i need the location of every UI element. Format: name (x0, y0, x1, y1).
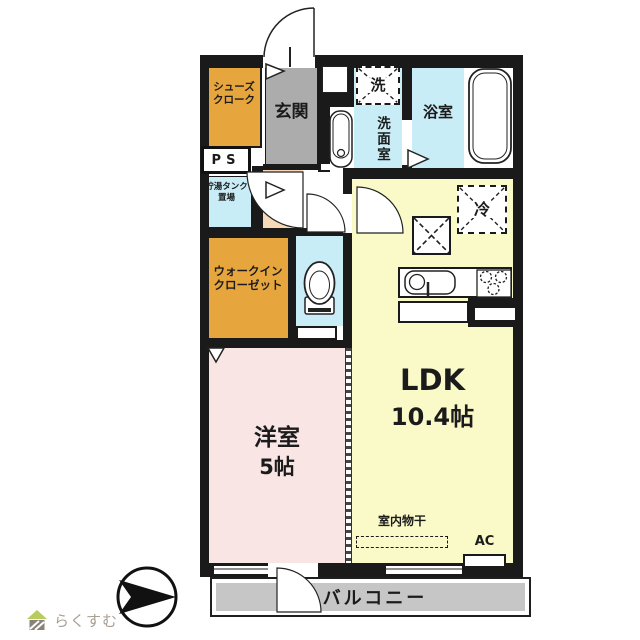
storage-x-mark (414, 218, 449, 253)
wall-mid-lower (200, 340, 352, 348)
entrance-doorway (263, 55, 315, 68)
western-room-window (214, 566, 268, 574)
fridge-box: 冷 (457, 185, 507, 234)
wall-left (200, 55, 209, 577)
wall-mid-upper (200, 228, 352, 236)
washroom-doorway (321, 164, 343, 170)
shoes-closet-label: シューズクローク (206, 81, 262, 107)
washer-box: 洗 (356, 66, 400, 105)
kitchen-storage-box (412, 216, 451, 255)
washroom-label: 洗面室 (364, 108, 390, 170)
ldk-window (386, 566, 462, 574)
indoor-drying-box (356, 536, 448, 548)
balcony-label: バルコニー (280, 588, 470, 611)
room-hallway (263, 170, 303, 228)
kitchen-pass-slot (475, 308, 515, 320)
pipe-space-label: PS (210, 154, 243, 167)
entrance-label: 玄関 (265, 102, 318, 123)
western-room-label: 洋室5帖 (209, 424, 345, 482)
indoor-drying-label: 室内物干 (356, 514, 448, 529)
washer-label: 洗 (368, 78, 387, 93)
logo-text: らくすむ (54, 610, 118, 631)
partition-sliding-door (345, 348, 352, 563)
wall-toilet-right (343, 233, 352, 348)
washbasin-icon (330, 111, 352, 167)
wall-niche (322, 66, 348, 93)
ldk-doorway (343, 194, 352, 233)
floor-plan: PS 洗 冷 (0, 0, 640, 640)
ac-label: AC (463, 534, 506, 550)
house-icon (26, 610, 49, 631)
compass-icon (118, 568, 176, 626)
room-toilet (296, 236, 343, 326)
balcony-doorway (268, 563, 318, 577)
walk-in-closet-label: ウォークインクローゼット (206, 264, 290, 293)
ac-box (463, 554, 506, 568)
water-tank-label: 貯湯タンク置場 (201, 182, 252, 203)
fridge-label: 冷 (472, 202, 492, 218)
wall-wic-right (290, 236, 296, 340)
kitchen-counter (398, 267, 512, 298)
wall-under-entrance (263, 164, 321, 170)
ldk-label: LDK10.4帖 (352, 363, 513, 433)
pipe-space-box: PS (201, 146, 251, 174)
toilet-shelf (296, 326, 337, 340)
room-hall-white (303, 170, 343, 233)
bathroom-doorway (402, 120, 412, 165)
kitchen-lower-counter (398, 301, 469, 323)
wall-tank-hall (252, 166, 263, 236)
room-bath-tub-area (464, 64, 513, 168)
site-logo: らくすむ (26, 610, 118, 631)
bathroom-label: 浴室 (412, 103, 464, 122)
wall-hall-right (343, 168, 352, 194)
